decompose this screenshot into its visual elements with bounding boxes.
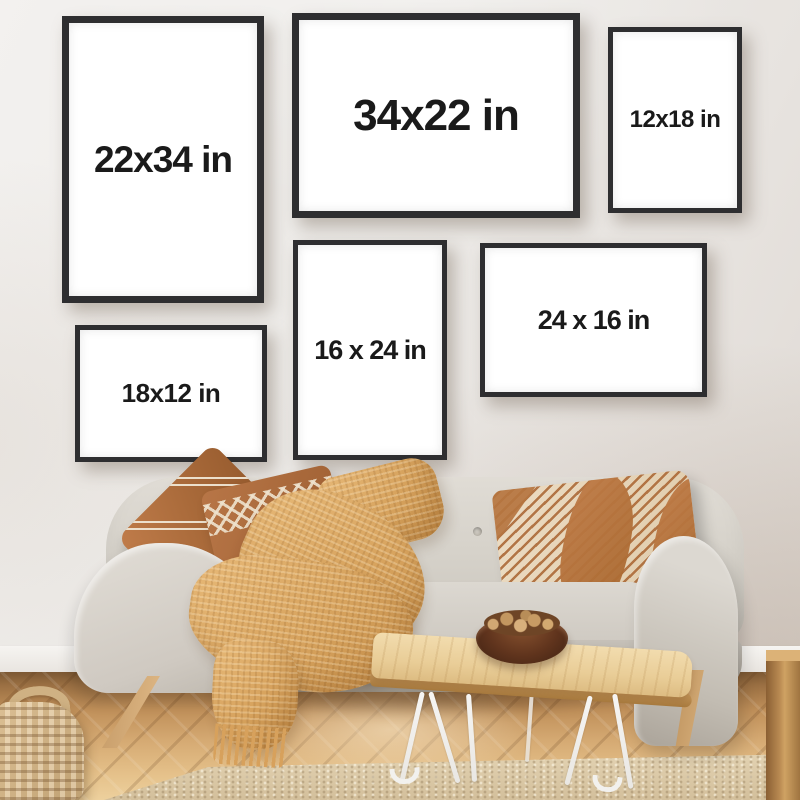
frame-size-label: 12x18 in bbox=[630, 106, 721, 134]
woven-basket bbox=[0, 702, 84, 800]
living-room-photo: 22x34 in 34x22 in 12x18 in 16 x 24 in 24… bbox=[0, 0, 800, 800]
frame-16x24: 16 x 24 in bbox=[293, 240, 447, 460]
wood-cube-stool bbox=[766, 650, 800, 800]
pillow-corner-accent bbox=[491, 485, 542, 544]
walnuts-in-bowl bbox=[484, 610, 560, 636]
frame-18x12: 18x12 in bbox=[75, 325, 267, 462]
frame-size-label: 24 x 16 in bbox=[538, 305, 650, 336]
frame-22x34: 22x34 in bbox=[62, 16, 264, 303]
blanket-fringe bbox=[213, 724, 288, 769]
frame-size-label: 34x22 in bbox=[353, 91, 519, 141]
frame-size-label: 18x12 in bbox=[122, 378, 221, 409]
frame-12x18: 12x18 in bbox=[608, 27, 742, 213]
frame-size-label: 16 x 24 in bbox=[314, 335, 426, 366]
sofa-tufting-button bbox=[473, 527, 482, 536]
frame-34x22: 34x22 in bbox=[292, 13, 580, 218]
wood-cube-top bbox=[766, 650, 800, 661]
frame-size-label: 22x34 in bbox=[94, 139, 232, 181]
frame-24x16: 24 x 16 in bbox=[480, 243, 707, 397]
